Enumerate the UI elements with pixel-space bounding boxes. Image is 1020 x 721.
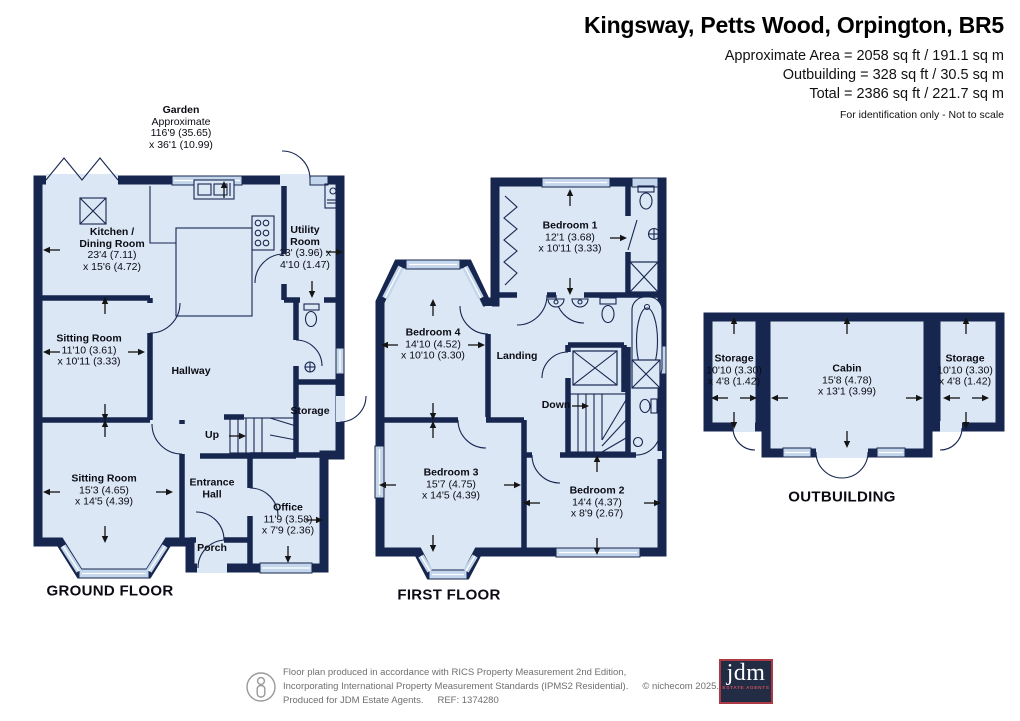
total-area: Total = 2386 sq ft / 221.7 sq m (584, 86, 1004, 102)
room-label-bedroom-3: Bedroom 3 15'7 (4.75) x 14'5 (4.39) (422, 468, 480, 503)
room-label-kitchen-dining: Kitchen / Dining Room 23'4 (7.11) x 15'6… (79, 227, 144, 273)
footer: Floor plan produced in accordance with R… (283, 666, 719, 707)
room-label-bedroom-4: Bedroom 4 14'10 (4.52) x 10'10 (3.30) (401, 328, 465, 363)
basin-icon (649, 229, 660, 240)
room-label-sitting-room-1: Sitting Room 11'10 (3.61) x 10'11 (3.33) (56, 334, 121, 369)
jdm-logo-text: jdm (721, 662, 771, 685)
label-up: Up (205, 430, 219, 442)
shower-icon (630, 262, 658, 292)
room-label-sitting-room-2: Sitting Room 15'3 (4.65) x 14'5 (4.39) (71, 474, 136, 509)
room-label-entrance-hall: Entrance Hall (190, 477, 235, 500)
garden-dim-2: x 36'1 (10.99) (149, 140, 213, 152)
room-label-storage-right: Storage 10'10 (3.30) x 4'8 (1.42) (937, 354, 993, 389)
disclaimer: For identification only - Not to scale (584, 109, 1004, 121)
reference-number: REF: 1374280 (437, 695, 498, 706)
kitchen-sink-icon (194, 180, 234, 199)
shower-icon (632, 360, 660, 388)
room-label-hallway: Hallway (171, 366, 210, 378)
room-label-storage-gf: Storage (290, 406, 329, 418)
floorplan-page: .fp{fill:#dbe7f5;stroke:#17264f;stroke-w… (0, 0, 1020, 721)
floor-title-outbuilding: OUTBUILDING (788, 489, 895, 506)
floor-title-first: FIRST FLOOR (397, 587, 500, 604)
footer-line-2: Incorporating International Property Mea… (283, 680, 719, 694)
room-label-bedroom-2: Bedroom 2 14'4 (4.37) x 8'9 (2.67) (570, 486, 625, 521)
room-label-office: Office 11'9 (3.58) x 7'9 (2.36) (262, 503, 314, 538)
room-label-bedroom-1: Bedroom 1 12'1 (3.68) x 10'11 (3.33) (538, 221, 601, 256)
page-title: Kingsway, Petts Wood, Orpington, BR5 (584, 12, 1004, 39)
floor-title-ground: GROUND FLOOR (47, 583, 174, 600)
room-label-utility: Utility Room 13' (3.96) x 4'10 (1.47) (279, 225, 331, 271)
room-label-landing: Landing (497, 351, 538, 363)
approximate-area: Approximate Area = 2058 sq ft / 191.1 sq… (584, 48, 1004, 64)
header: Kingsway, Petts Wood, Orpington, BR5 App… (584, 12, 1004, 121)
shower-icon (573, 351, 617, 385)
outbuilding-area: Outbuilding = 328 sq ft / 30.5 sq m (584, 67, 1004, 83)
footer-line-3: Produced for JDM Estate Agents.REF: 1374… (283, 694, 719, 708)
garden-label: Garden Approximate 116'9 (35.65) x 36'1 … (149, 105, 213, 151)
garden-dim-1: 116'9 (35.65) (149, 128, 213, 140)
label-down: Down (542, 400, 571, 412)
footer-line-1: Floor plan produced in accordance with R… (283, 666, 719, 680)
basin-icon (305, 362, 315, 372)
room-label-storage-left: Storage 10'10 (3.30) x 4'8 (1.42) (706, 354, 762, 389)
jdm-logo-tagline: ESTATE AGENTS (721, 686, 771, 691)
jdm-logo: jdm ESTATE AGENTS (719, 659, 773, 704)
copyright: © nichecom 2025. (642, 681, 719, 692)
person-badge-icon (245, 670, 277, 704)
room-label-porch: Porch (197, 543, 227, 555)
room-label-cabin: Cabin 15'8 (4.78) x 13'1 (3.99) (818, 364, 876, 399)
garden-name: Garden (149, 105, 213, 117)
